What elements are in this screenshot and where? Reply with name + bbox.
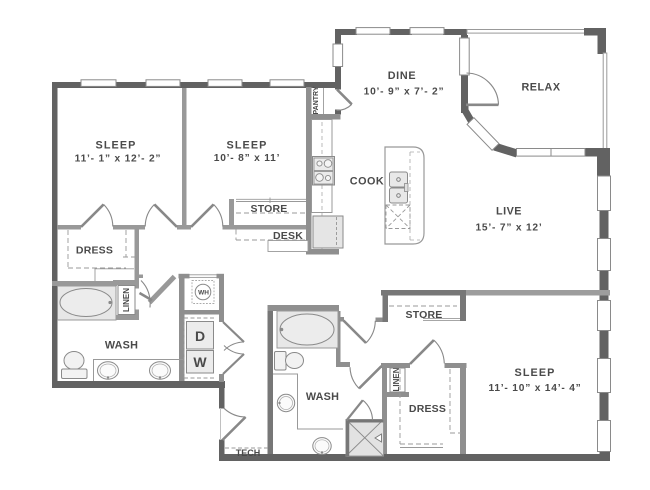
svg-text:WASH: WASH [306, 391, 339, 403]
svg-text:11’- 10” x 14’- 4”: 11’- 10” x 14’- 4” [488, 383, 581, 394]
svg-text:TECH: TECH [236, 448, 261, 458]
svg-text:DRESS: DRESS [409, 403, 446, 415]
svg-text:10’- 8” x 11’: 10’- 8” x 11’ [214, 153, 280, 164]
svg-text:LINEN: LINEN [392, 367, 401, 391]
svg-text:STORE: STORE [251, 203, 288, 215]
svg-text:WASH: WASH [105, 339, 138, 351]
svg-text:W: W [193, 354, 207, 370]
svg-text:RELAX: RELAX [521, 81, 560, 93]
svg-text:DINE: DINE [388, 70, 417, 82]
svg-text:10’- 9” x 7’- 2”: 10’- 9” x 7’- 2” [364, 87, 445, 98]
svg-text:LINEN: LINEN [122, 288, 131, 312]
svg-text:PANTRY: PANTRY [313, 86, 320, 114]
svg-text:SLEEP: SLEEP [515, 367, 556, 379]
svg-text:WH: WH [198, 290, 209, 297]
svg-text:STORE: STORE [406, 309, 443, 321]
svg-text:SLEEP: SLEEP [227, 140, 268, 152]
svg-text:LIVE: LIVE [496, 205, 522, 217]
svg-text:COOK: COOK [350, 176, 384, 188]
svg-text:11’- 1” x 12’- 2”: 11’- 1” x 12’- 2” [75, 153, 162, 164]
svg-text:SLEEP: SLEEP [96, 140, 137, 152]
svg-text:DESK: DESK [273, 230, 303, 242]
svg-text:DRESS: DRESS [76, 245, 113, 257]
svg-text:D: D [195, 328, 205, 344]
svg-text:15’- 7” x 12’: 15’- 7” x 12’ [475, 222, 542, 233]
